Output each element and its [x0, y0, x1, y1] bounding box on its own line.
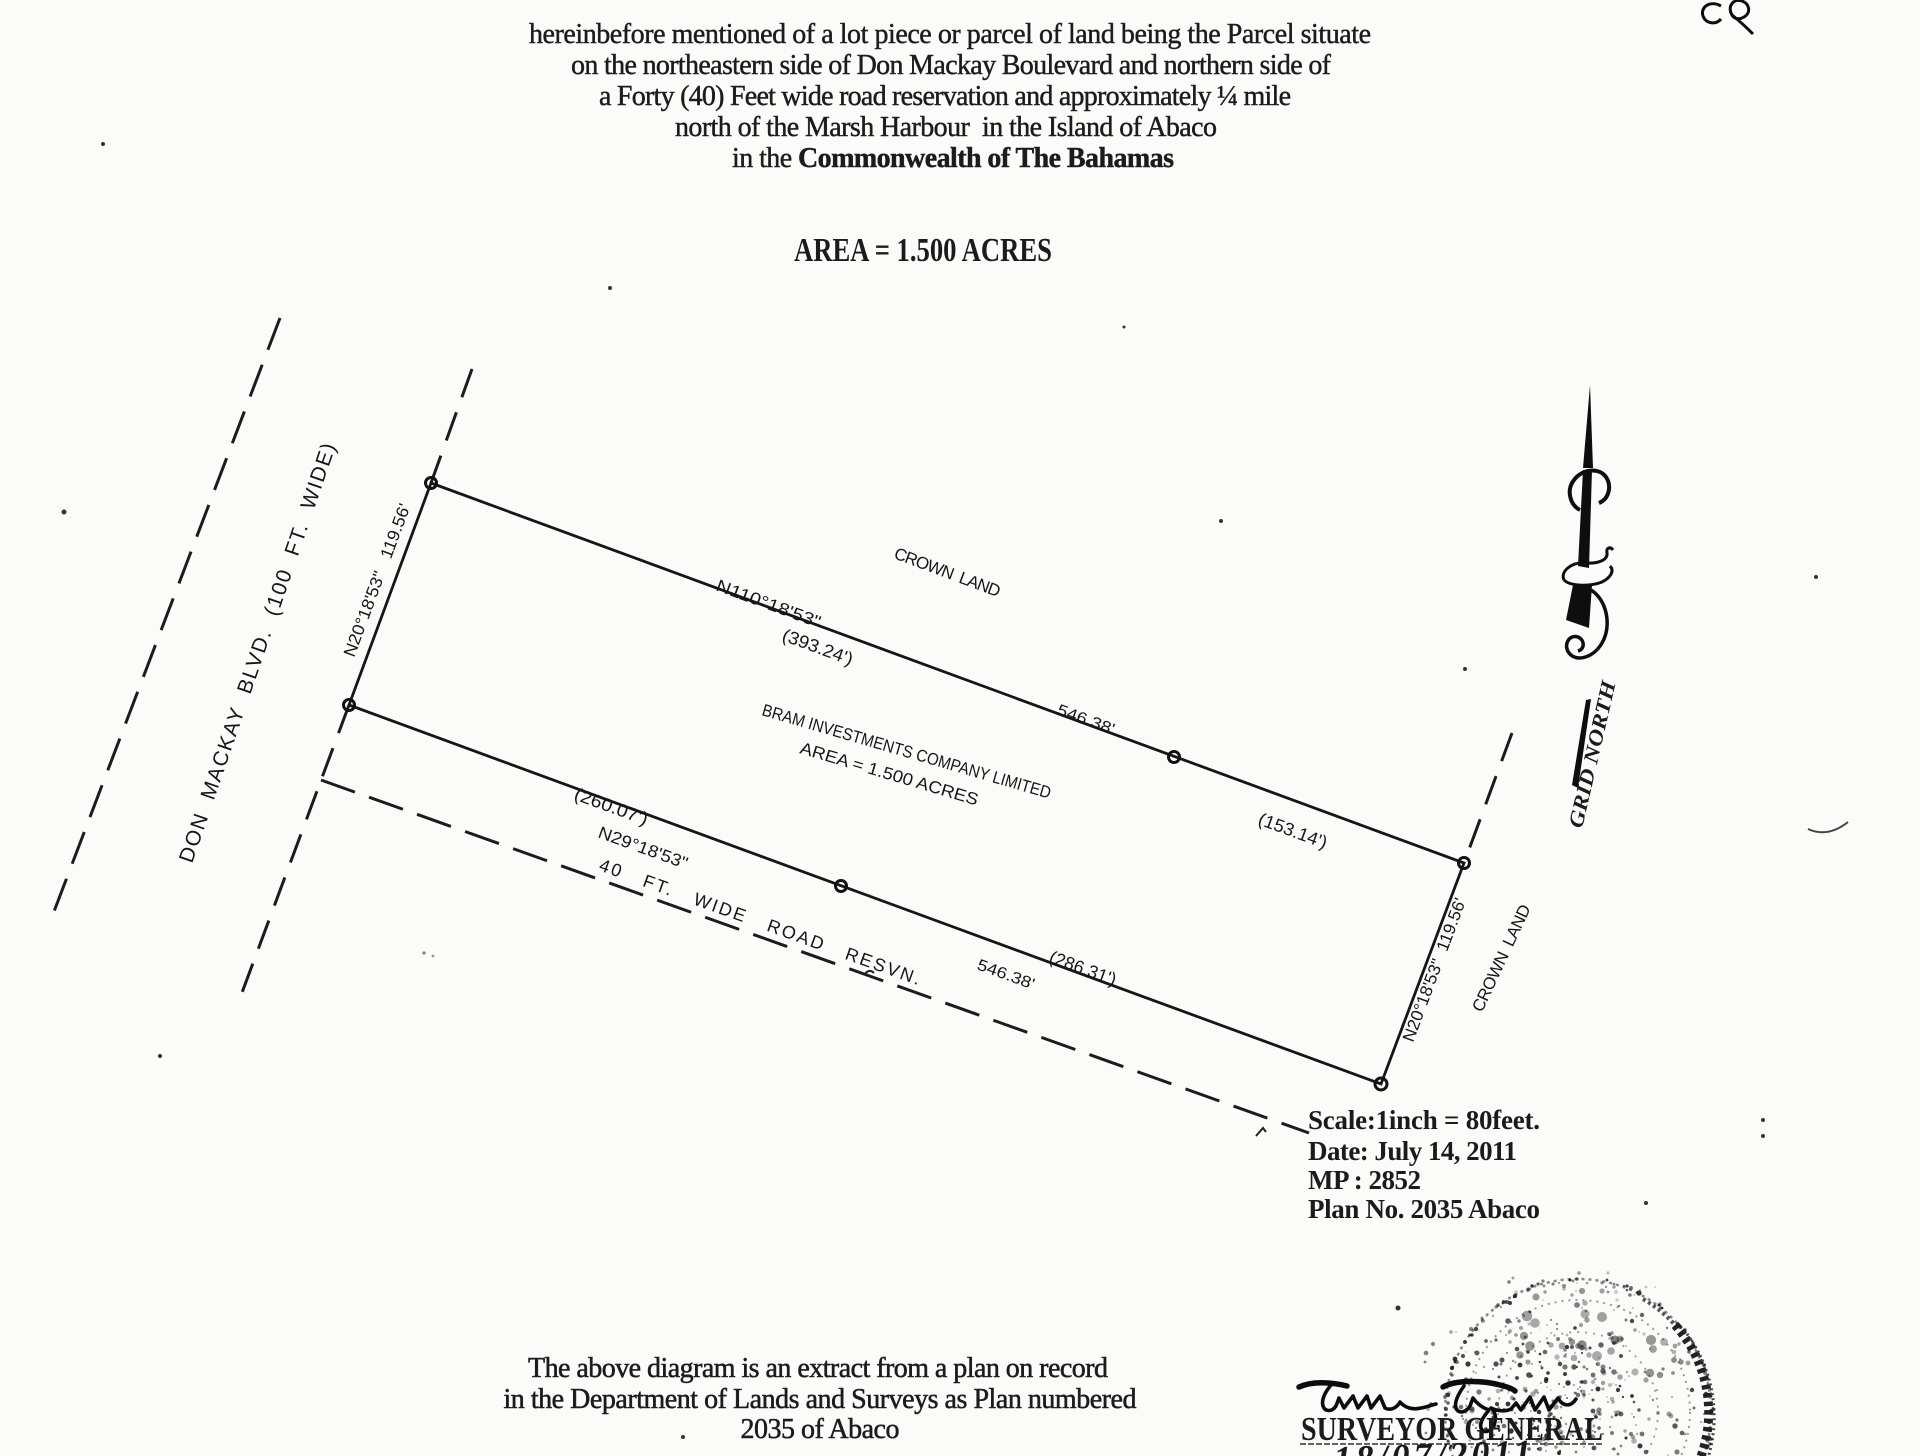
svg-text:AREA = 1.500 ACRES: AREA = 1.500 ACRES	[794, 232, 1052, 269]
svg-text:in the Department of Lands and: in the Department of Lands and Surveys a…	[504, 1384, 1137, 1415]
svg-text:40 FT. WIDE ROAD RESVN: 40 FT. WIDE ROAD RESVN.	[597, 855, 924, 989]
svg-text:N110°18'53": N110°18'53"	[714, 576, 824, 632]
svg-text:GRID NORTH: GRID NORTH	[1563, 678, 1620, 830]
svg-text:546.38': 546.38'	[1055, 702, 1117, 739]
svg-text:N20°18'53" 119.56': N20°18'53" 119.56'	[1399, 895, 1470, 1044]
svg-text:CROWN LAND: CROWN LAND	[1468, 902, 1534, 1015]
svg-text:in the Commonwealth of The Bah: in the Commonwealth of The Bahamas	[732, 143, 1174, 174]
svg-text:DON MACKAY BLVD. (100 FT.: DON MACKAY BLVD. (100 FT. WIDE)	[175, 440, 341, 865]
svg-text:(260.07'): (260.07')	[572, 784, 651, 829]
svg-text:north of the Marsh Harbour in: north of the Marsh Harbour in the Island…	[675, 112, 1217, 143]
svg-text:MP : 2852: MP : 2852	[1308, 1165, 1421, 1195]
svg-text:(393.24'): (393.24')	[780, 625, 856, 669]
svg-text:(153.14'): (153.14')	[1256, 809, 1330, 853]
svg-text:(286.31'): (286.31')	[1047, 947, 1120, 990]
svg-text:Date: July 14, 2011: Date: July 14, 2011	[1308, 1136, 1517, 1166]
svg-text:Scale:1inch = 80feet.: Scale:1inch = 80feet.	[1308, 1105, 1540, 1135]
svg-text:N20°18'53" 119.56': N20°18'53" 119.56'	[340, 501, 415, 659]
svg-text:a Forty (40) Feet wide road re: a Forty (40) Feet wide road reservation …	[599, 81, 1291, 112]
svg-text:The above diagram is an extrac: The above diagram is an extract from a p…	[528, 1353, 1108, 1384]
svg-text:CROWN LAND: CROWN LAND	[892, 544, 1004, 601]
svg-text:on the northeastern side of Do: on the northeastern side of Don Mackay B…	[571, 50, 1332, 81]
svg-text:2035 of Abaco: 2035 of Abaco	[741, 1414, 900, 1445]
svg-text:546.38': 546.38'	[975, 957, 1037, 993]
svg-text:Plan No. 2035 Abaco: Plan No. 2035 Abaco	[1308, 1194, 1540, 1224]
svg-text:hereinbefore mentioned of a lo: hereinbefore mentioned of a lot piece or…	[529, 19, 1371, 50]
